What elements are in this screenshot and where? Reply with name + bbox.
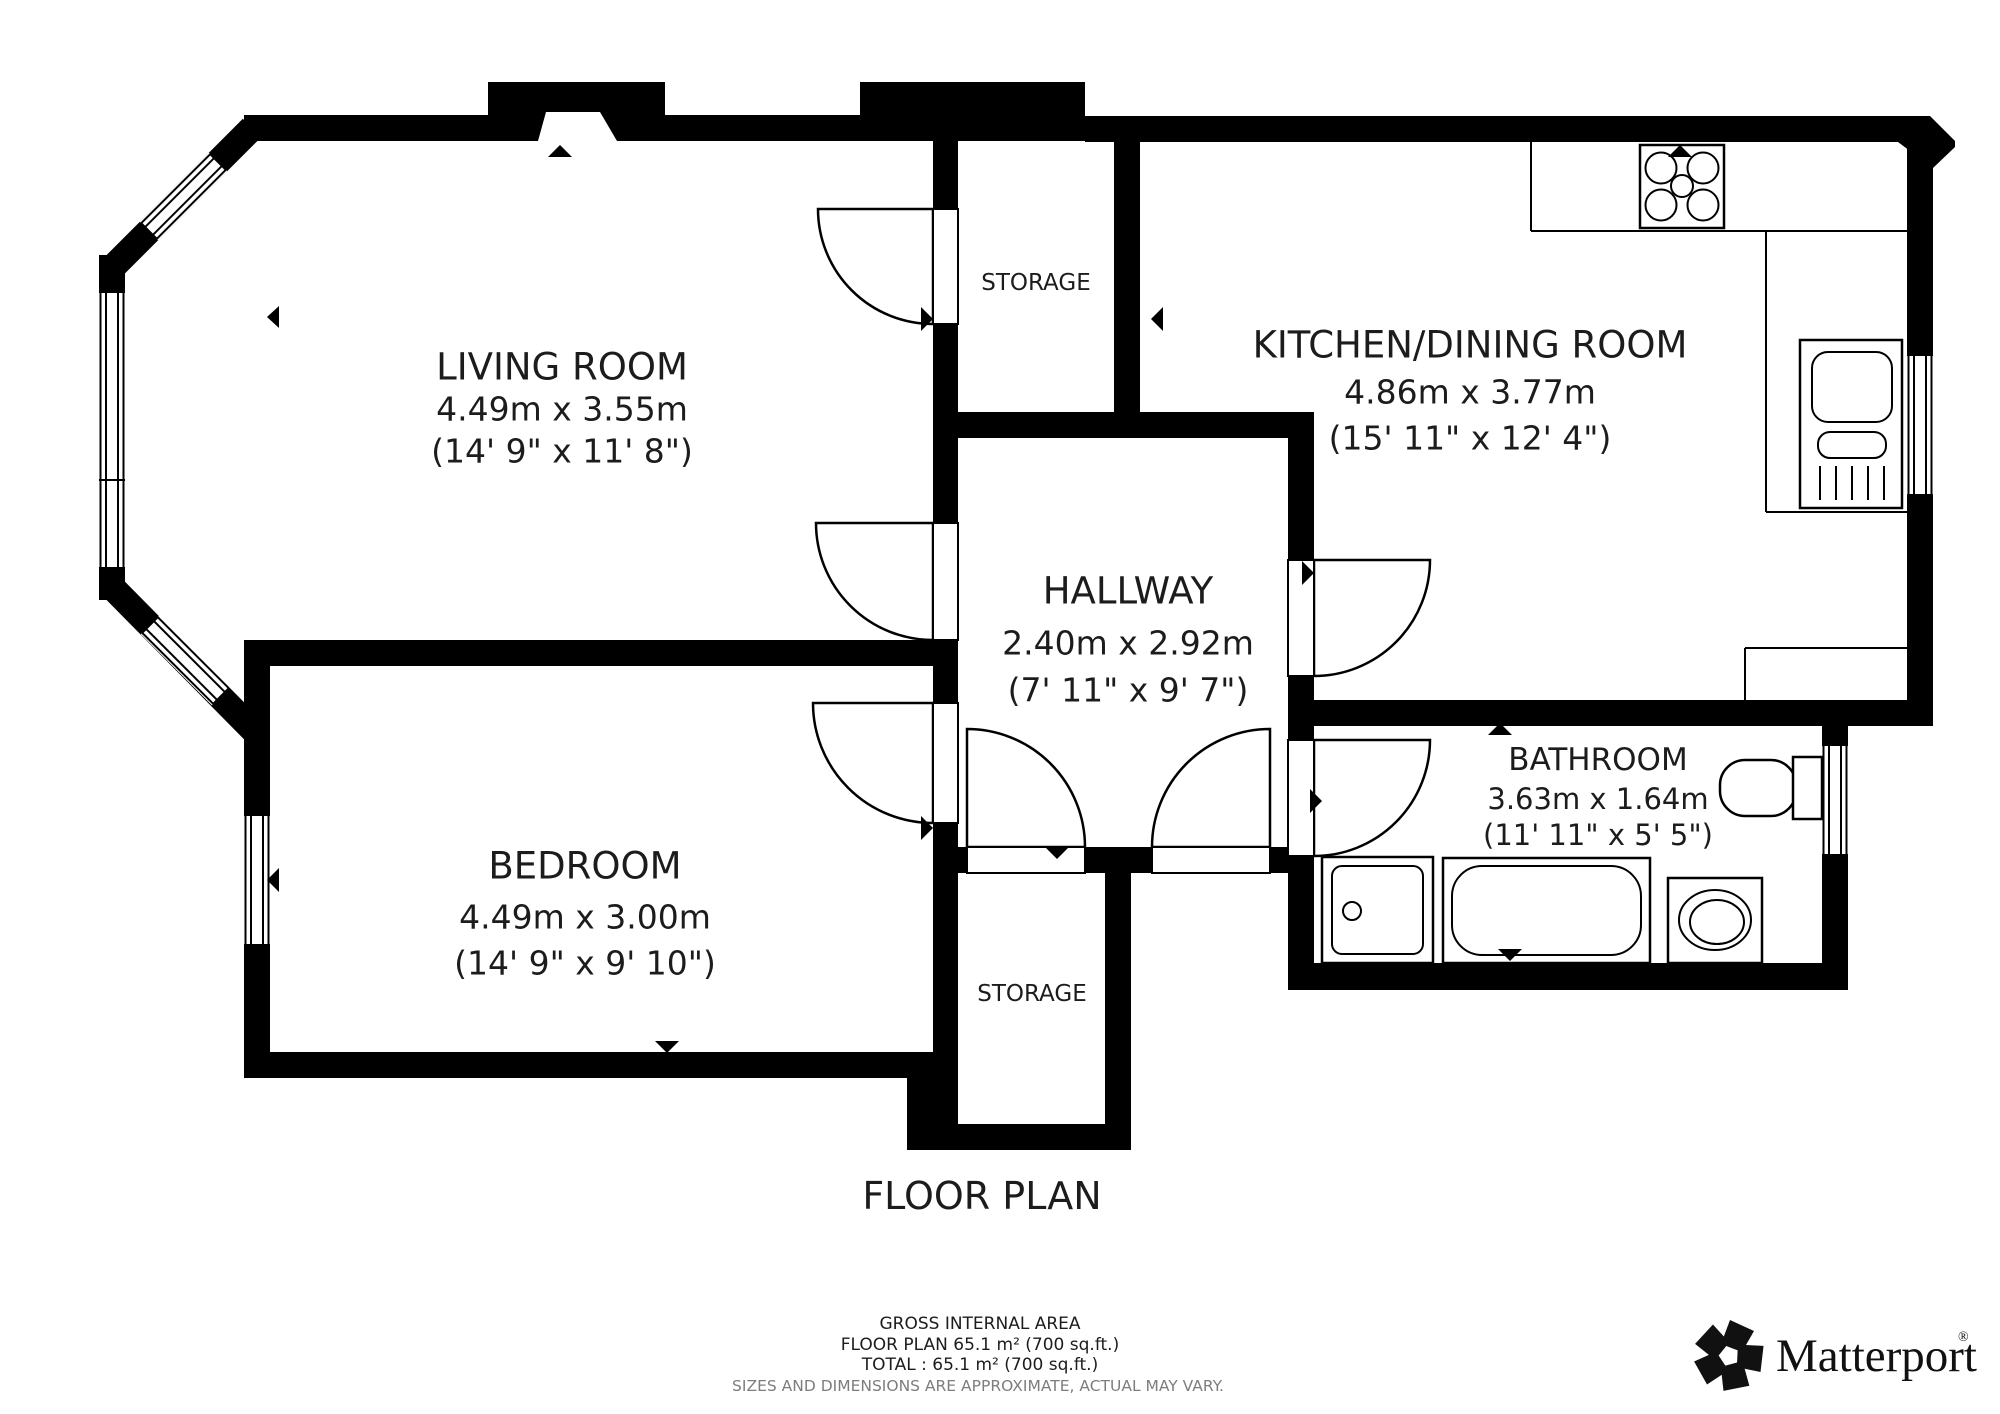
door-leaf-storage-top — [933, 209, 958, 324]
wall-storage-bottom-right — [1105, 873, 1131, 1150]
door-leaf-bedroom — [933, 703, 958, 823]
window-bay-left — [99, 292, 125, 568]
matterport-wordmark: Matterport — [1776, 1330, 1977, 1382]
hallway-metric: 2.40m x 2.92m — [1002, 624, 1254, 663]
living-room-imperial: (14' 9" x 11' 8") — [431, 432, 693, 471]
window-bedroom — [244, 815, 270, 945]
brand: Matterport ® — [1688, 1320, 1977, 1400]
marker-left-icon — [1151, 307, 1163, 331]
door-swing-kitchen — [1314, 560, 1430, 676]
registered-mark: ® — [1958, 1330, 1969, 1345]
door-swing-storage-bottom — [967, 729, 1085, 847]
matterport-logo-icon — [1688, 1320, 1771, 1400]
kitchen-imperial: (15' 11" x 12' 4") — [1329, 419, 1612, 458]
window-kitchen — [1907, 355, 1933, 495]
door-leaf-kitchen — [1288, 560, 1314, 676]
storage-bottom-label: STORAGE — [977, 981, 1087, 1007]
kitchen-name: KITCHEN/DINING ROOM — [1253, 324, 1688, 367]
window-bay-upper — [141, 154, 226, 239]
bathtub — [1443, 858, 1650, 963]
floor-plan-drawing: LIVING ROOM 4.49m x 3.55m (14' 9" x 11' … — [0, 0, 2000, 1414]
toilet — [1720, 757, 1822, 819]
wall-storage-top-right — [1114, 141, 1140, 412]
door-leaf-entrance — [1152, 847, 1270, 873]
kitchen-sink — [1800, 340, 1902, 508]
window-bathroom — [1822, 745, 1848, 855]
shower — [1322, 857, 1433, 963]
kitchen-metric: 4.86m x 3.77m — [1344, 373, 1596, 412]
bathroom-sink — [1668, 878, 1762, 963]
footer-total-line: TOTAL : 65.1 m² (700 sq.ft.) — [861, 1355, 1098, 1375]
wall-kitchen-top — [1085, 116, 1920, 142]
door-leaf-storage-bottom — [967, 847, 1085, 873]
door-swing-storage-top — [818, 209, 933, 324]
door-swing-bedroom — [813, 703, 933, 823]
bathroom-metric: 3.63m x 1.64m — [1487, 782, 1708, 816]
footer-area-heading: GROSS INTERNAL AREA — [879, 1314, 1080, 1334]
bathroom-name: BATHROOM — [1508, 742, 1687, 778]
wall-bedroom-bottom — [244, 1052, 933, 1078]
floor-plan-page: LIVING ROOM 4.49m x 3.55m (14' 9" x 11' … — [0, 0, 2000, 1414]
hallway-name: HALLWAY — [1043, 570, 1214, 613]
wall-facade-step — [860, 82, 1085, 141]
marker-left-icon — [267, 306, 279, 328]
wall-hallway-top — [933, 412, 1314, 438]
bedroom-imperial: (14' 9" x 9' 10") — [454, 944, 716, 983]
door-swing-living — [816, 523, 933, 640]
wall-storage-bottom — [907, 1124, 1131, 1150]
hob — [1640, 145, 1724, 228]
marker-down-icon — [655, 1041, 679, 1053]
door-swing-bathroom — [1314, 740, 1430, 856]
storage-top-label: STORAGE — [981, 270, 1091, 296]
living-room-metric: 4.49m x 3.55m — [436, 390, 688, 429]
bedroom-name: BEDROOM — [488, 845, 681, 888]
wall-living-bedroom-divider — [244, 640, 933, 666]
footer-disclaimer: SIZES AND DIMENSIONS ARE APPROXIMATE, AC… — [732, 1377, 1224, 1395]
page-title: FLOOR PLAN — [862, 1174, 1101, 1218]
wall-bathroom-bottom — [1288, 963, 1848, 990]
living-room-name: LIVING ROOM — [436, 346, 688, 389]
bathroom-imperial: (11' 11" x 5' 5") — [1483, 818, 1713, 852]
door-swing-entrance — [1152, 729, 1270, 847]
hallway-imperial: (7' 11" x 9' 7") — [1008, 671, 1249, 710]
footer-area-line: FLOOR PLAN 65.1 m² (700 sq.ft.) — [841, 1335, 1119, 1355]
bedroom-metric: 4.49m x 3.00m — [459, 898, 711, 937]
titles-and-footer: FLOOR PLAN GROSS INTERNAL AREA FLOOR PLA… — [732, 1174, 1224, 1395]
window-bay-lower — [142, 617, 229, 704]
marker-up-icon — [548, 145, 572, 157]
door-leaf-living — [933, 523, 958, 640]
